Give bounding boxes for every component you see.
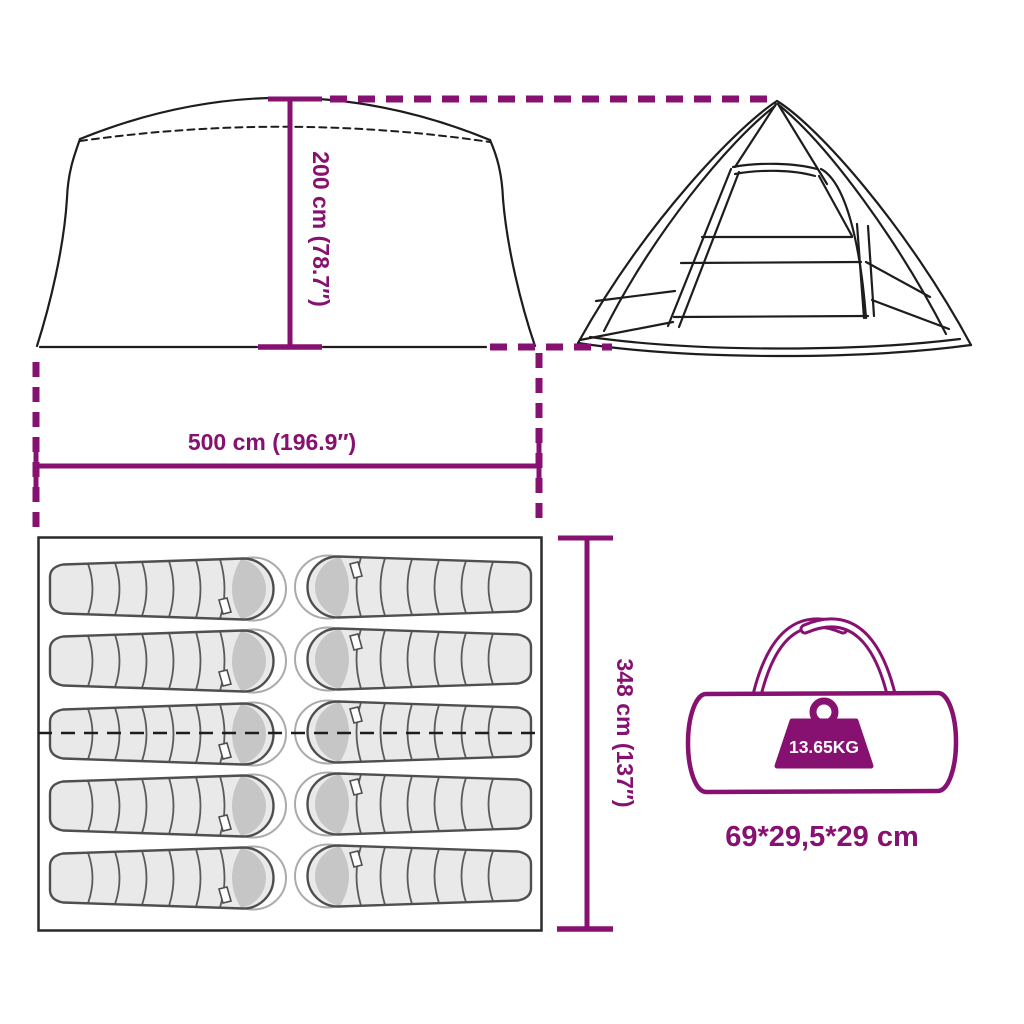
side-view-left-wall	[37, 139, 80, 346]
sleeping-bag-right-2	[295, 628, 531, 691]
front-view-dome-top-seam	[735, 171, 815, 176]
front-view-low-seam	[674, 316, 868, 317]
width-label: 500 cm (196.9″)	[188, 429, 356, 455]
product-dimension-diagram: 200 cm (78.7″) 500 cm (196.9″) 348 cm (1…	[0, 0, 1024, 1024]
weight-label: 13.65KG	[789, 737, 859, 757]
carry-bag-size-label: 69*29,5*29 cm	[725, 821, 919, 853]
sleeping-bag-right-1	[295, 556, 531, 619]
front-view-pole-left-outer	[668, 169, 731, 326]
front-view-left-panel-seam-low	[580, 322, 673, 340]
front-view-pole-right-inner	[868, 226, 874, 316]
height-label: 200 cm (78.7″)	[308, 151, 334, 307]
front-view-right-panel-seam-low	[872, 300, 949, 329]
depth-label: 348 cm (137″)	[612, 658, 638, 807]
depth-dimension	[557, 538, 613, 929]
front-view-right-panel-seam	[866, 262, 930, 297]
front-view-outer-left	[578, 101, 777, 343]
front-view-ground-seam	[590, 337, 960, 349]
sleeping-bag-left-4	[50, 775, 286, 838]
side-view-roof-seam-dashed	[80, 127, 490, 142]
floor-plan	[38, 538, 544, 931]
side-view-right-wall	[490, 140, 535, 346]
sleeping-bag-left-2	[50, 630, 286, 693]
front-view-pole-right-outer	[857, 224, 864, 318]
front-view-dome-top	[733, 164, 817, 169]
front-view-pole-left-inner	[679, 172, 739, 327]
sleeping-bag-right-4	[295, 773, 531, 836]
sleeping-bag-left-1	[50, 558, 286, 621]
tent-side-view	[37, 98, 535, 347]
sleeping-bag-right-5	[295, 845, 531, 908]
sleeping-bag-left-5	[50, 847, 286, 910]
front-view-mid-seam	[681, 262, 861, 263]
carry-bag: 13.65KG 69*29,5*29 cm	[688, 623, 956, 853]
tent-front-view	[578, 101, 971, 356]
